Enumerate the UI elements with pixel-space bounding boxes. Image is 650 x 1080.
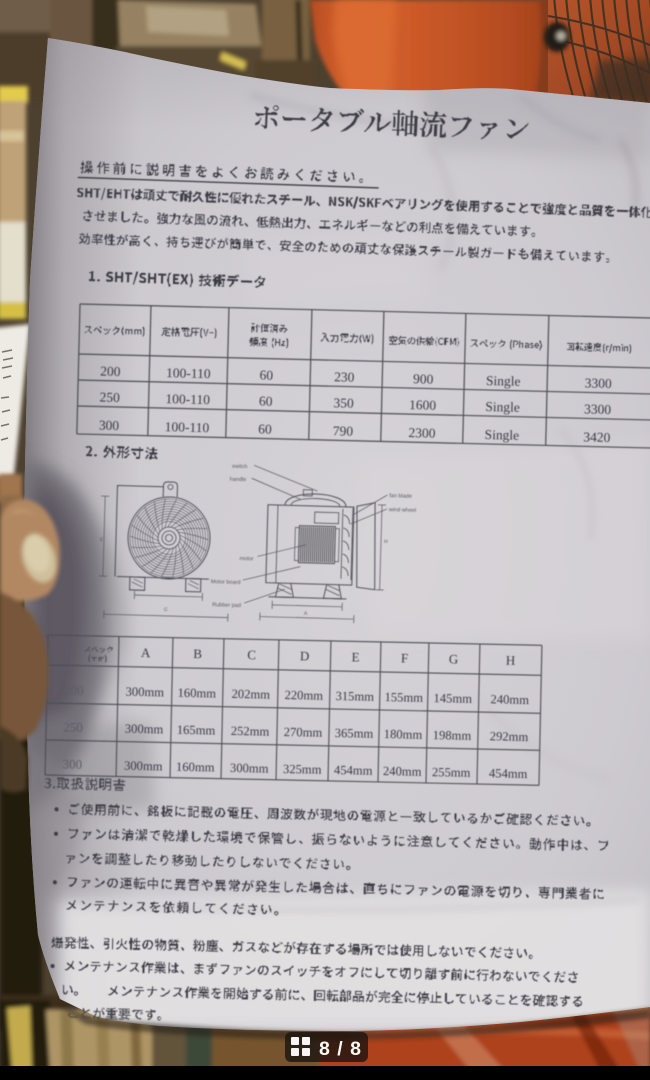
svg-text:220mm: 220mm bbox=[284, 688, 323, 703]
svg-text:160mm: 160mm bbox=[176, 760, 215, 775]
svg-text:240mm: 240mm bbox=[383, 764, 422, 779]
svg-text:300mm: 300mm bbox=[124, 759, 163, 774]
svg-text:fan blade: fan blade bbox=[389, 493, 412, 500]
svg-text:B: B bbox=[193, 646, 202, 661]
svg-text:Single: Single bbox=[484, 427, 519, 443]
svg-text:Motor board: Motor board bbox=[211, 579, 241, 586]
svg-text:3300: 3300 bbox=[584, 401, 612, 417]
svg-text:300: 300 bbox=[62, 756, 82, 771]
svg-text:300mm: 300mm bbox=[125, 685, 164, 700]
svg-text:H: H bbox=[384, 539, 388, 545]
svg-text:240mm: 240mm bbox=[490, 692, 529, 707]
svg-text:100-110: 100-110 bbox=[165, 419, 210, 435]
svg-text:250: 250 bbox=[99, 390, 120, 405]
svg-text:Single: Single bbox=[485, 399, 520, 415]
svg-text:C: C bbox=[164, 607, 168, 613]
svg-text:Single: Single bbox=[486, 373, 521, 389]
svg-text:255mm: 255mm bbox=[432, 765, 471, 780]
svg-text:900: 900 bbox=[413, 371, 434, 386]
svg-text:D: D bbox=[300, 648, 310, 663]
svg-text:300mm: 300mm bbox=[125, 722, 164, 737]
svg-text:325mm: 325mm bbox=[283, 762, 322, 777]
svg-text:454mm: 454mm bbox=[489, 766, 528, 781]
svg-text:202mm: 202mm bbox=[231, 687, 270, 702]
svg-text:8 / 8: 8 / 8 bbox=[319, 1038, 362, 1060]
svg-text:250: 250 bbox=[63, 719, 83, 734]
svg-text:165mm: 165mm bbox=[177, 723, 216, 738]
svg-text:292mm: 292mm bbox=[490, 729, 529, 744]
svg-text:100-110: 100-110 bbox=[166, 365, 211, 381]
svg-text:C: C bbox=[247, 647, 256, 662]
svg-text:200: 200 bbox=[100, 364, 121, 379]
svg-text:300: 300 bbox=[99, 418, 120, 433]
svg-text:790: 790 bbox=[333, 423, 354, 438]
svg-text:145mm: 145mm bbox=[433, 691, 472, 706]
svg-text:200: 200 bbox=[64, 682, 84, 697]
svg-text:100-110: 100-110 bbox=[165, 391, 210, 407]
svg-text:60: 60 bbox=[259, 393, 273, 408]
svg-text:E: E bbox=[351, 649, 359, 664]
svg-text:270mm: 270mm bbox=[284, 725, 323, 740]
svg-text:F: F bbox=[401, 650, 409, 665]
svg-text:G: G bbox=[449, 651, 459, 666]
svg-text:60: 60 bbox=[259, 367, 273, 382]
svg-text:1600: 1600 bbox=[409, 397, 437, 413]
svg-text:300mm: 300mm bbox=[230, 761, 269, 776]
svg-text:454mm: 454mm bbox=[334, 763, 373, 778]
svg-text:H: H bbox=[506, 653, 516, 668]
svg-text:160mm: 160mm bbox=[177, 686, 216, 701]
svg-text:350: 350 bbox=[333, 395, 354, 410]
svg-text:180mm: 180mm bbox=[384, 727, 423, 742]
svg-text:252mm: 252mm bbox=[231, 724, 270, 739]
svg-text:230: 230 bbox=[334, 369, 355, 384]
svg-text:switch: switch bbox=[232, 464, 247, 470]
svg-text:60: 60 bbox=[258, 421, 272, 436]
svg-text:3300: 3300 bbox=[585, 375, 613, 391]
svg-text:A: A bbox=[141, 645, 151, 660]
svg-text:wind wheel: wind wheel bbox=[388, 507, 416, 514]
svg-text:198mm: 198mm bbox=[433, 728, 472, 743]
svg-text:motor: motor bbox=[239, 556, 253, 562]
svg-text:Rubber pad: Rubber pad bbox=[212, 602, 241, 609]
svg-text:handle: handle bbox=[230, 477, 247, 483]
svg-text:365mm: 365mm bbox=[335, 726, 374, 741]
svg-text:3420: 3420 bbox=[583, 429, 611, 445]
svg-text:2300: 2300 bbox=[408, 425, 436, 441]
svg-text:315mm: 315mm bbox=[335, 689, 374, 704]
svg-text:155mm: 155mm bbox=[384, 690, 423, 705]
